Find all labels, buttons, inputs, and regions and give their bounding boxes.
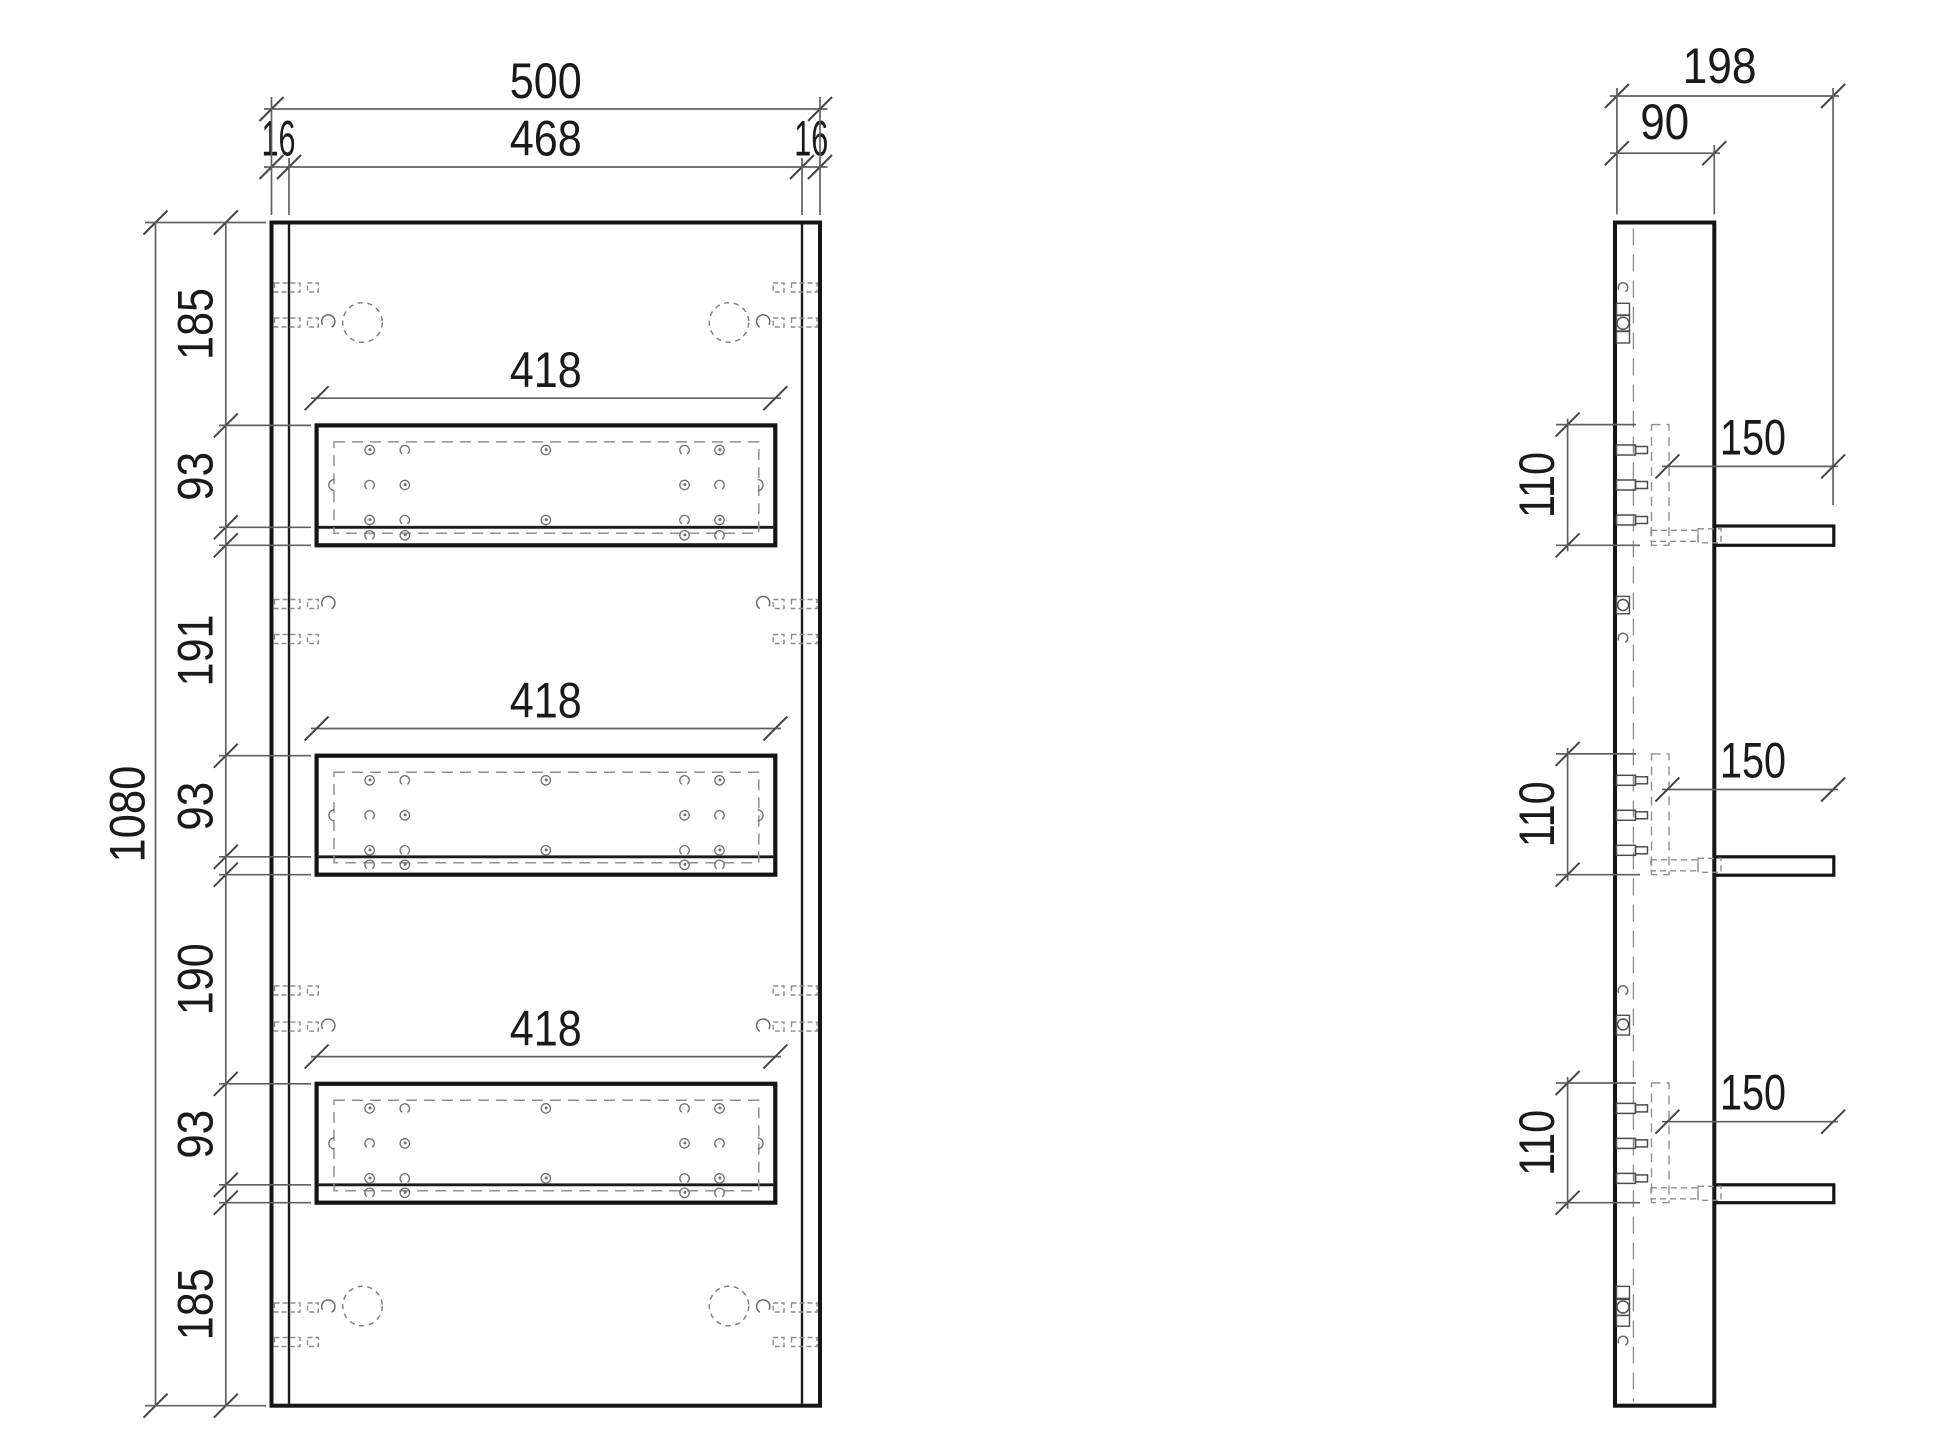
svg-text:500: 500 (510, 53, 582, 109)
svg-text:198: 198 (1683, 38, 1757, 94)
svg-text:418: 418 (510, 673, 582, 729)
svg-text:110: 110 (1509, 452, 1565, 518)
svg-text:93: 93 (168, 1110, 224, 1159)
svg-text:93: 93 (168, 782, 224, 831)
svg-text:1080: 1080 (100, 766, 156, 863)
svg-text:191: 191 (168, 615, 224, 687)
svg-text:418: 418 (510, 342, 582, 398)
svg-text:418: 418 (510, 1001, 582, 1057)
svg-text:190: 190 (168, 943, 224, 1015)
svg-text:185: 185 (168, 288, 224, 360)
svg-text:90: 90 (1640, 94, 1689, 150)
svg-text:150: 150 (1720, 733, 1786, 789)
svg-text:150: 150 (1720, 1065, 1786, 1121)
svg-text:93: 93 (168, 452, 224, 501)
svg-text:16: 16 (794, 111, 828, 167)
svg-text:110: 110 (1509, 1110, 1565, 1176)
svg-text:150: 150 (1720, 409, 1786, 465)
svg-text:16: 16 (262, 111, 296, 167)
svg-text:110: 110 (1509, 781, 1565, 847)
svg-text:185: 185 (168, 1268, 224, 1340)
svg-text:468: 468 (510, 111, 582, 167)
